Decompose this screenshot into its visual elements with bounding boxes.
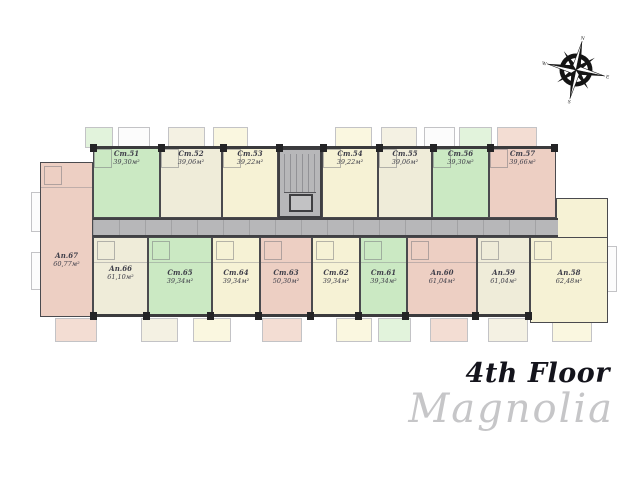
balcony <box>168 127 205 148</box>
unit-label: Ст.6139,34м² <box>361 268 406 286</box>
unit-label: Ст.5339,22м² <box>223 149 277 167</box>
compass-west-label: W <box>542 61 547 68</box>
unit-ap59: Ап.5961,04м² <box>477 237 530 317</box>
unit-ap66: Ап.6661,10м² <box>93 237 148 317</box>
wall-pier <box>430 144 437 152</box>
balcony <box>378 318 411 342</box>
wall-pier <box>307 312 314 320</box>
stairs <box>284 154 316 193</box>
unit-st62: Ст.6239,34м² <box>312 237 360 317</box>
wall-pier <box>158 144 165 152</box>
unit-label: Ст.5739,66м² <box>490 149 555 167</box>
wall-pier <box>487 144 494 152</box>
unit-st55: Ст.5539,06м² <box>378 148 432 218</box>
brand-name: Magnolia <box>408 386 614 432</box>
wall-pier <box>90 312 97 320</box>
wall-pier <box>276 144 283 152</box>
unit-label: Ст.6239,34м² <box>313 268 359 286</box>
floor-title: 4th Floor <box>466 358 610 389</box>
compass-east-label: E <box>605 74 609 81</box>
balcony <box>424 127 455 148</box>
unit-st61: Ст.6139,34м² <box>360 237 407 317</box>
balcony <box>497 127 537 148</box>
unit-label: Ст.5439,22м² <box>323 149 377 167</box>
balcony <box>118 127 150 148</box>
corridor <box>93 218 558 237</box>
wall-pier <box>551 144 558 152</box>
wall-pier <box>90 144 97 152</box>
balcony <box>488 318 528 342</box>
unit-st52: Ст.5239,06м² <box>160 148 222 218</box>
unit-ap67: Ап.6760,77м² <box>40 162 93 317</box>
stairwell <box>278 148 322 218</box>
unit-label: Ст.6539,34м² <box>149 268 211 286</box>
unit-st65: Ст.6539,34м² <box>148 237 212 317</box>
elevator <box>289 194 313 212</box>
unit-label: Ст.5539,06м² <box>379 149 431 167</box>
unit-label: Ст.5239,06м² <box>161 149 221 167</box>
unit-st51: Ст.5139,30м² <box>93 148 160 218</box>
balcony <box>213 127 248 148</box>
unit-ap58-extension <box>556 198 608 239</box>
wall-pier <box>525 312 532 320</box>
wall-pier <box>402 312 409 320</box>
unit-label: Ап.6760,77м² <box>41 251 92 269</box>
unit-ap58: Ап.5862,48м² <box>530 237 608 323</box>
unit-st53: Ст.5339,22м² <box>222 148 278 218</box>
unit-label: Ст.6350,30м² <box>261 268 311 286</box>
unit-label: Ап.5862,48м² <box>531 268 607 286</box>
balcony <box>430 318 468 342</box>
balcony <box>262 318 302 342</box>
unit-label: Ап.6661,10м² <box>94 264 147 282</box>
unit-st64: Ст.6439,34м² <box>212 237 260 317</box>
unit-label: Ап.5961,04м² <box>478 268 529 286</box>
wall-pier <box>220 144 227 152</box>
unit-st56: Ст.5639,30м² <box>432 148 489 218</box>
compass-rose-icon: N E S W <box>542 34 610 106</box>
unit-label: Ап.6061,04м² <box>408 268 476 286</box>
balcony <box>336 318 372 342</box>
compass-north-label: N <box>580 35 585 42</box>
wall-pier <box>255 312 262 320</box>
wall-pier <box>376 144 383 152</box>
compass-south-label: S <box>567 99 571 106</box>
balcony <box>381 127 417 148</box>
unit-ap60: Ап.6061,04м² <box>407 237 477 317</box>
wall-pier <box>355 312 362 320</box>
balcony <box>55 318 97 342</box>
floorplan-page: N E S W Ст.5139,30м² Ст.5239,06м² Ст.533… <box>0 0 640 480</box>
unit-label: Ст.6439,34м² <box>213 268 259 286</box>
balcony <box>335 127 372 148</box>
unit-st57: Ст.5739,66м² <box>489 148 556 218</box>
balcony <box>193 318 231 342</box>
unit-label: Ст.5639,30м² <box>433 149 488 167</box>
unit-st63: Ст.6350,30м² <box>260 237 312 317</box>
balcony <box>141 318 178 342</box>
unit-st54: Ст.5439,22м² <box>322 148 378 218</box>
unit-label: Ст.5139,30м² <box>94 149 159 167</box>
wall-pier <box>143 312 150 320</box>
wall-pier <box>207 312 214 320</box>
wall-pier <box>472 312 479 320</box>
wall-pier <box>320 144 327 152</box>
